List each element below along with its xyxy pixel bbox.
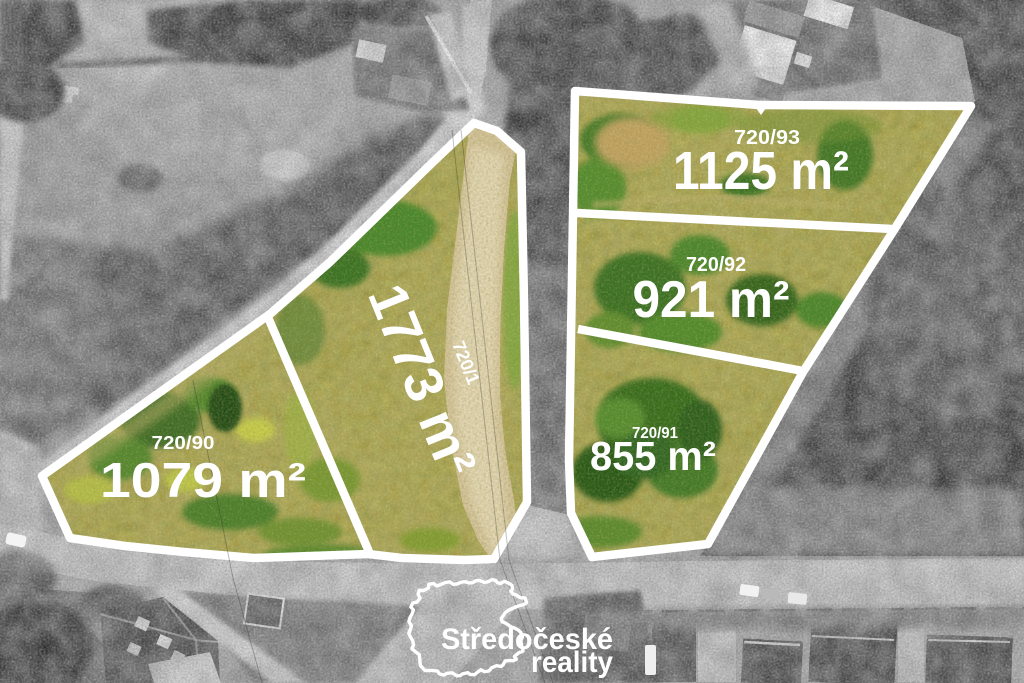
svg-text:1079 m²: 1079 m²	[100, 454, 306, 508]
svg-text:1125 m²: 1125 m²	[673, 141, 849, 201]
svg-text:855 m²: 855 m²	[590, 433, 716, 479]
svg-text:reality: reality	[531, 646, 613, 679]
svg-text:921 m²: 921 m²	[633, 271, 790, 329]
svg-text:720/90: 720/90	[152, 433, 215, 453]
